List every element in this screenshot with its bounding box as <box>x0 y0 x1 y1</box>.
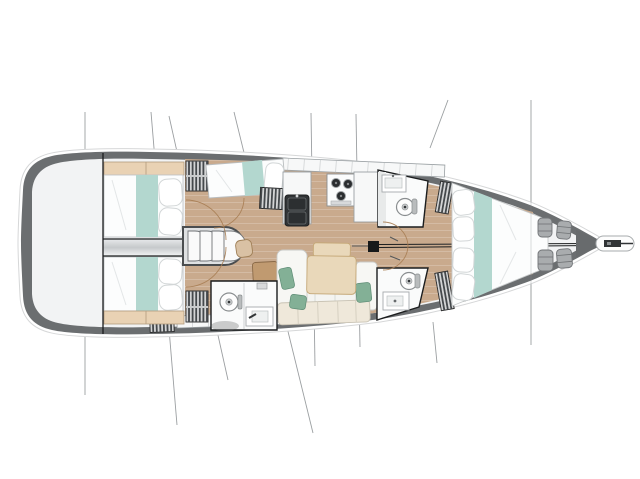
teal-runner <box>474 191 492 298</box>
rigging-line <box>430 100 448 148</box>
gray-seat <box>556 248 573 268</box>
foot-shelf <box>104 162 184 175</box>
gray-seat <box>556 220 572 239</box>
bowsprit <box>596 236 634 251</box>
teal-runner <box>136 257 158 311</box>
toilet <box>397 199 418 216</box>
sink <box>382 175 406 192</box>
anchor-fitting <box>604 240 621 247</box>
engine-compartment <box>103 239 184 256</box>
foot-shelf <box>104 311 184 324</box>
port-aft-cabin <box>104 162 184 237</box>
yacht-floorplan <box>0 0 640 479</box>
green-pillow <box>289 294 307 310</box>
sink <box>246 307 273 326</box>
green-pillow <box>355 282 372 302</box>
stove <box>327 174 356 206</box>
floorplan-canvas <box>0 0 640 479</box>
teal-runner <box>136 175 158 237</box>
rigging-line <box>433 322 437 363</box>
counter-right <box>354 172 380 222</box>
double-sink <box>285 195 309 226</box>
starboard-aft-cabin <box>104 257 184 324</box>
gray-seat <box>538 250 553 271</box>
starboard-aft-head <box>211 281 277 331</box>
vent <box>257 283 267 289</box>
gray-seat <box>538 218 552 237</box>
toilet <box>401 273 421 290</box>
sink <box>383 292 409 310</box>
toilet <box>220 293 242 311</box>
hanging-locker <box>186 291 208 322</box>
cabinet <box>235 239 253 258</box>
hanging-locker <box>186 161 208 191</box>
salon-table <box>307 243 357 295</box>
hanging-locker <box>259 187 284 209</box>
